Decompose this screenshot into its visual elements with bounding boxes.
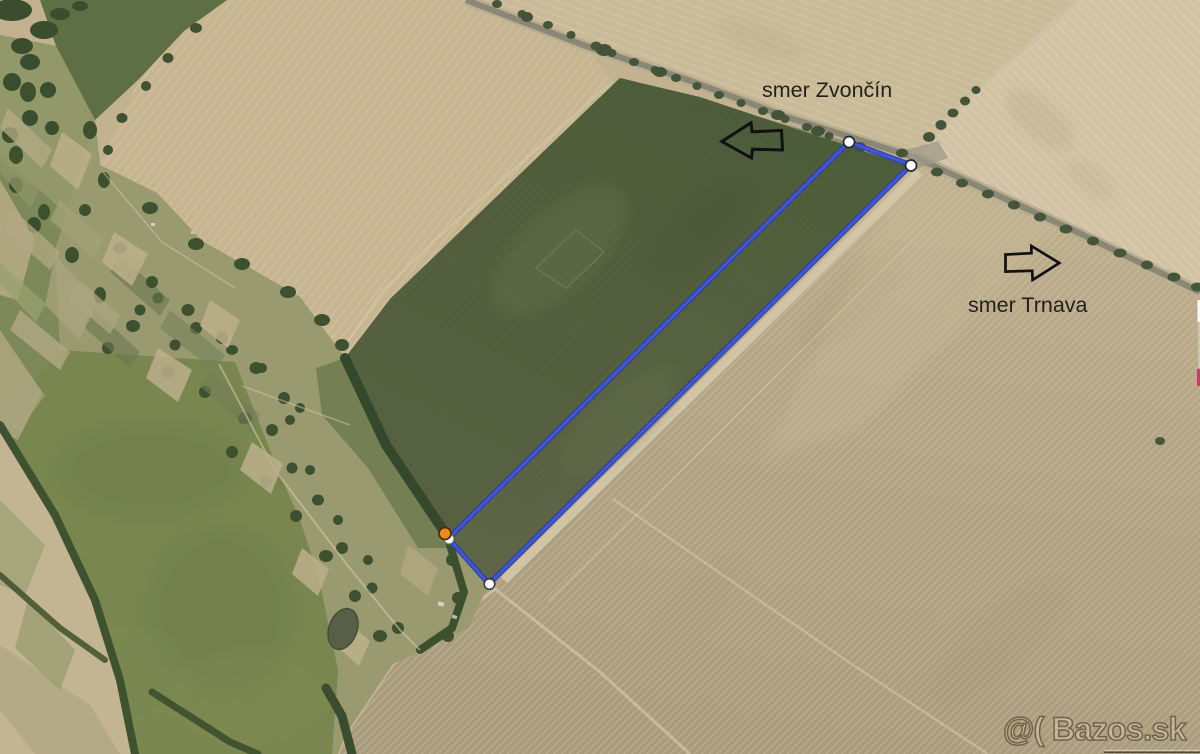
svg-text:smer Zvončín: smer Zvončín [762, 78, 892, 102]
svg-text:smer Trnava: smer Trnava [968, 293, 1088, 317]
svg-text:@( Bazos.sk: @( Bazos.sk [1003, 711, 1187, 747]
